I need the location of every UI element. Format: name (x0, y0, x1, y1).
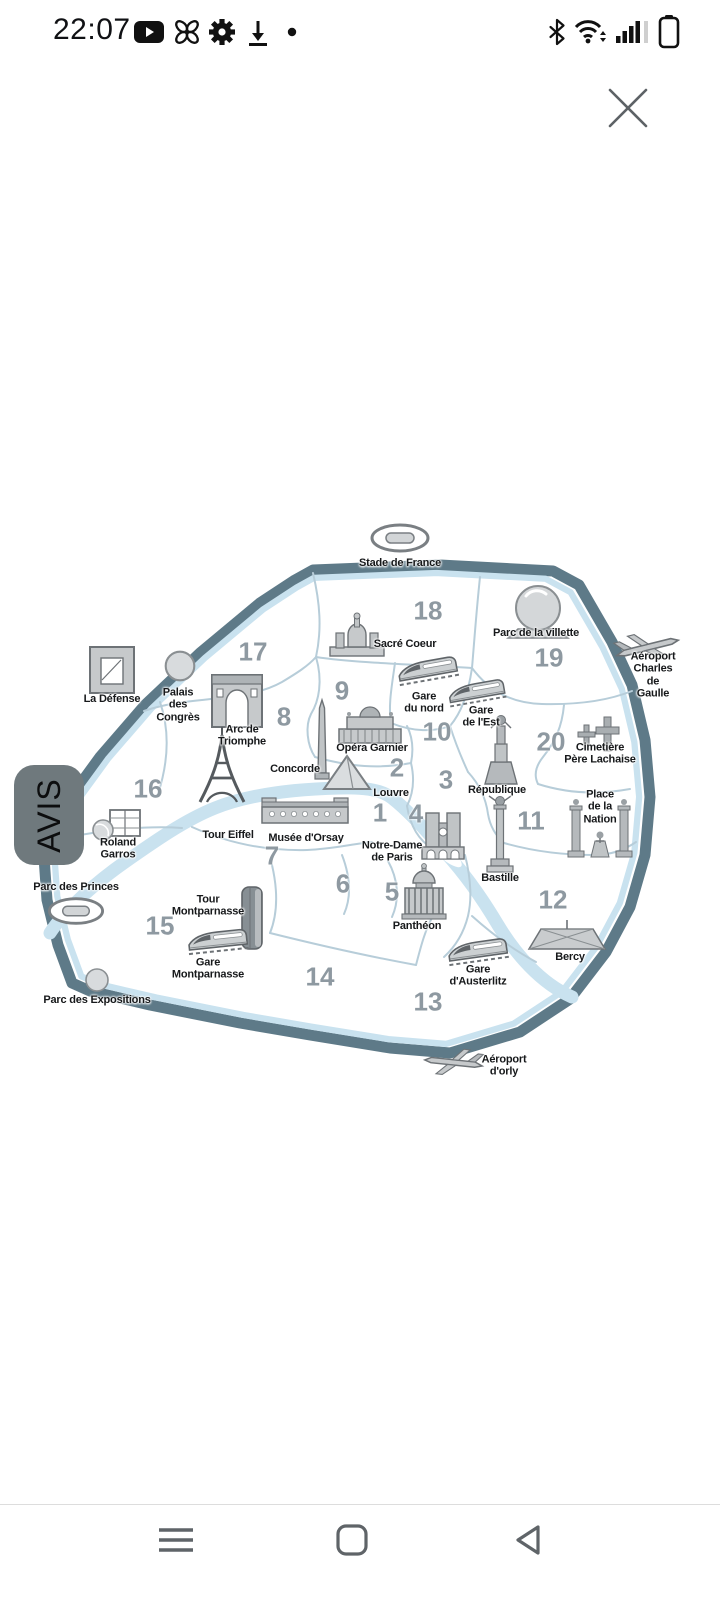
youtube-icon (133, 20, 165, 44)
home-icon[interactable] (292, 1505, 412, 1575)
arrondissement-2: 2 (390, 753, 404, 784)
parc-expositions-icon (86, 969, 108, 991)
landmark-label-bercy: Bercy (555, 951, 585, 963)
landmark-label-tour-eiffel: Tour Eiffel (202, 829, 253, 841)
fan-icon (172, 17, 202, 47)
close-icon[interactable] (606, 86, 650, 130)
arrondissement-19: 19 (535, 643, 564, 674)
wifi-icon (572, 17, 612, 47)
landmark-label-gare-montparnasse: Gare Montparnasse (172, 957, 244, 982)
paris-map: 1 2 3 4 5 6 7 8 9 10 11 12 13 14 15 16 1… (20, 505, 700, 1080)
landmark-label-la-defense: La Défense (84, 693, 141, 705)
landmark-label-cdg-airport: Aéroport Charles de Gaulle (630, 650, 677, 699)
stade-de-france-icon (372, 525, 428, 551)
parc-des-princes-icon (49, 899, 102, 924)
signal-icon (616, 18, 652, 46)
arrondissement-14: 14 (306, 962, 335, 993)
landmark-label-bastille: Bastille (481, 872, 519, 884)
landmark-label-arc-triomphe: Arc de Triomphe (218, 724, 266, 749)
landmark-label-parc-princes: Parc des Princes (33, 881, 118, 893)
arrondissement-20: 20 (537, 727, 566, 758)
landmark-label-pantheon: Panthéon (393, 920, 442, 932)
landmark-label-parc-villette: Parc de la villette (493, 627, 579, 639)
status-bar: 22:07 (0, 0, 720, 60)
landmark-label-stade-de-france: Stade de France (359, 557, 441, 569)
gear-icon (207, 17, 237, 47)
battery-icon (656, 14, 682, 50)
landmark-label-roland-garros: Roland Garros (100, 837, 136, 862)
back-icon[interactable] (468, 1505, 588, 1575)
clock: 22:07 (53, 13, 131, 47)
landmark-label-tour-montparnasse: Tour Montparnasse (172, 894, 244, 919)
landmark-label-place-nation: Place de la Nation (583, 789, 616, 826)
landmark-label-gare-du-nord: Gare du nord (404, 691, 444, 716)
landmark-label-orly-airport: Aéroport d'orly (482, 1054, 527, 1079)
musee-d-orsay-icon (262, 798, 348, 823)
bluetooth-icon (546, 16, 568, 48)
gare-du-nord-train-icon (397, 656, 459, 685)
landmark-label-sacre-coeur: Sacré Coeur (374, 638, 437, 650)
bercy-arena-icon (529, 920, 605, 949)
notification-dot (286, 26, 298, 38)
avis-tab-label: AVIS (31, 778, 68, 853)
landmark-label-louvre: Louvre (373, 787, 408, 799)
arrondissement-12: 12 (539, 885, 568, 916)
gare-de-l-est-train-icon (447, 679, 506, 707)
arrondissement-7: 7 (265, 841, 279, 872)
landmark-label-republique: République (468, 784, 526, 796)
arrondissement-15: 15 (146, 911, 175, 942)
sim2-no-signal-icon (644, 21, 648, 43)
landmark-label-notre-dame: Notre-Dame de Paris (362, 840, 422, 865)
arrondissement-3: 3 (439, 765, 453, 796)
palais-congres-icon (166, 652, 195, 681)
landmark-label-gare-austerlitz: Gare d'Austerlitz (449, 964, 506, 989)
arrondissement-1: 1 (373, 798, 387, 829)
arrondissement-5: 5 (385, 877, 399, 908)
arrondissement-13: 13 (414, 987, 443, 1018)
android-nav-bar (0, 1505, 720, 1600)
arrondissement-6: 6 (336, 869, 350, 900)
arc-de-triomphe-icon (212, 675, 262, 727)
arrondissement-8: 8 (277, 702, 291, 733)
opera-garnier-icon (339, 707, 401, 743)
arrondissement-17: 17 (239, 637, 268, 668)
arrondissement-16: 16 (134, 774, 163, 805)
landmark-label-concorde: Concorde (270, 763, 320, 775)
arrondissement-18: 18 (414, 596, 443, 627)
landmark-label-pere-lachaise: Cimetière Père Lachaise (564, 742, 635, 767)
landmark-label-gare-de-l-est: Gare de l'Est (462, 705, 499, 730)
roland-garros-icon (93, 810, 140, 840)
avis-tab[interactable]: AVIS (14, 765, 84, 865)
bastille-column-icon (487, 796, 513, 872)
landmark-label-palais-congres: Palais des Congrès (156, 687, 199, 724)
menu-icon[interactable] (116, 1505, 236, 1575)
la-defense-icon (90, 647, 134, 693)
notre-dame-icon (422, 813, 464, 859)
arrondissement-9: 9 (335, 676, 349, 707)
gare-montparnasse-train-icon (187, 929, 249, 954)
arrondissement-4: 4 (409, 799, 423, 830)
landmark-label-musee-orsay: Musée d'Orsay (268, 832, 343, 844)
landmark-label-opera-garnier: Opéra Garnier (336, 742, 407, 754)
pantheon-icon (402, 864, 446, 919)
landmark-label-parc-expositions: Parc des Expositions (43, 994, 150, 1006)
arrondissement-11: 11 (517, 806, 545, 837)
download-icon (244, 16, 272, 48)
arrondissement-10: 10 (423, 717, 452, 748)
